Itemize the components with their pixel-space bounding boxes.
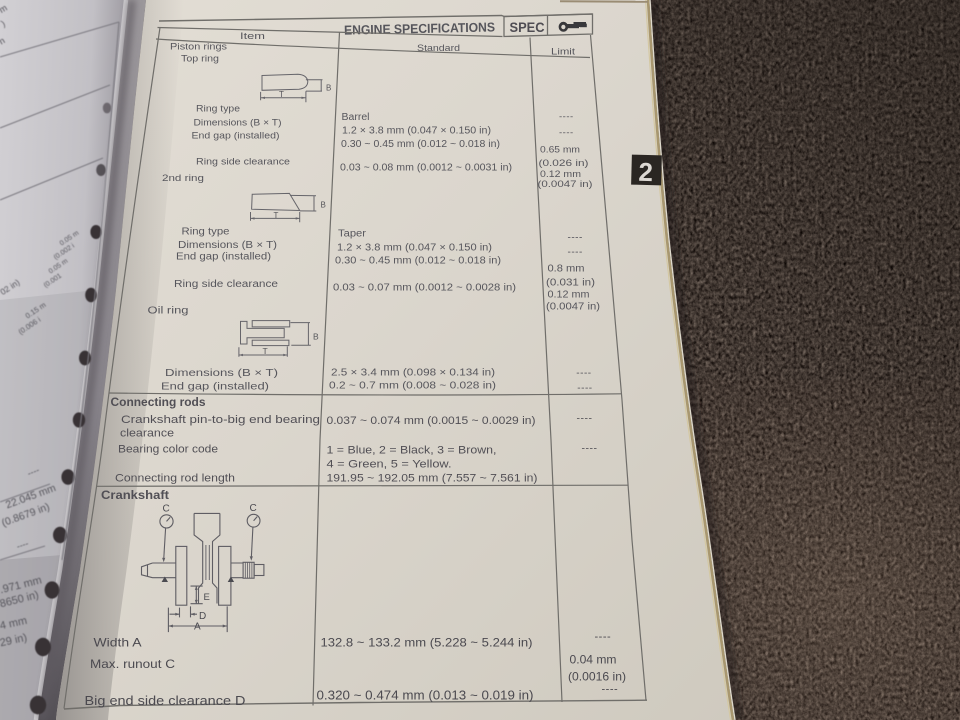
svg-text:0.30 ~ 0.45 mm (0.012 ~ 0.018: 0.30 ~ 0.45 mm (0.012 ~ 0.018 in) [335,256,501,267]
svg-text:191.95 ~ 192.05 mm (7.557 ~ 7.: 191.95 ~ 192.05 mm (7.557 ~ 7.561 in) [327,473,538,485]
svg-text:Taper: Taper [338,229,367,240]
svg-text:----: ---- [568,233,583,244]
svg-text:0.03 ~ 0.08 mm (0.0012 ~ 0.003: 0.03 ~ 0.08 mm (0.0012 ~ 0.0031 in) [340,163,512,174]
svg-text:Item: Item [240,31,265,42]
svg-text:Big end side clearance D: Big end side clearance D [85,694,246,708]
svg-text:Connecting rods: Connecting rods [111,397,206,409]
svg-text:Dimensions (B × T): Dimensions (B × T) [178,240,277,251]
svg-text:132.8 ~ 133.2 mm (5.228 ~ 5.24: 132.8 ~ 133.2 mm (5.228 ~ 5.244 in) [321,636,533,650]
svg-text:Dimensions (B × T): Dimensions (B × T) [165,367,278,379]
svg-text:Dimensions (B × T): Dimensions (B × T) [194,118,282,129]
svg-text:1.2 × 3.8 mm (0.047 × 0.150 in: 1.2 × 3.8 mm (0.047 × 0.150 in) [342,126,491,137]
svg-text:B: B [326,84,331,93]
svg-text:0.12 mm: 0.12 mm [548,290,590,301]
svg-text:Width A: Width A [94,636,142,650]
svg-text:----: ---- [577,383,592,394]
svg-text:T: T [274,211,279,220]
svg-text:Ring type: Ring type [182,227,230,238]
svg-text:----: ---- [595,631,612,643]
svg-text:----: ---- [576,368,591,379]
svg-text:Crankshaft pin-to-big end bear: Crankshaft pin-to-big end bearing [121,414,320,426]
svg-text:2nd ring: 2nd ring [162,173,204,184]
svg-text:B: B [321,201,326,210]
svg-text:Bearing color code: Bearing color code [118,444,218,456]
svg-text:End gap (installed): End gap (installed) [161,381,269,393]
svg-text:clearance: clearance [120,428,174,440]
svg-text:----: ---- [577,413,593,425]
svg-text:Ring type: Ring type [196,104,240,115]
svg-text:SPEC: SPEC [510,20,545,35]
svg-text:----: ---- [602,684,619,696]
svg-text:Ring side clearance: Ring side clearance [174,279,279,290]
svg-text:(0.0047 in): (0.0047 in) [538,179,593,190]
svg-text:Connecting rod length: Connecting rod length [115,473,235,485]
svg-text:----: ---- [568,247,583,258]
svg-text:C: C [163,504,170,515]
svg-text:Crankshaft: Crankshaft [101,488,169,502]
svg-text:0.03 ~ 0.07 mm (0.0012 ~ 0.002: 0.03 ~ 0.07 mm (0.0012 ~ 0.0028 in) [333,283,516,294]
svg-text:----: ---- [559,128,574,139]
svg-text:(0.026 in): (0.026 in) [539,158,589,169]
svg-text:2: 2 [638,157,653,187]
svg-text:----: ---- [582,443,598,455]
svg-text:1.2 × 3.8 mm (0.047 × 0.150 in: 1.2 × 3.8 mm (0.047 × 0.150 in) [337,243,492,254]
svg-text:C: C [250,503,257,514]
svg-text:Ring side clearance: Ring side clearance [196,157,290,168]
svg-text:1 = Blue, 2 = Black, 3 = Brown: 1 = Blue, 2 = Black, 3 = Brown, [327,445,497,457]
svg-text:End gap (installed): End gap (installed) [176,252,271,263]
svg-text:B: B [313,332,319,342]
svg-text:2.5 × 3.4 mm (0.098 × 0.134 in: 2.5 × 3.4 mm (0.098 × 0.134 in) [331,367,495,379]
svg-text:(0.0047 in): (0.0047 in) [546,302,600,313]
svg-text:E: E [204,592,210,603]
svg-text:(0.0016 in): (0.0016 in) [568,670,626,684]
svg-text:(0.031 in): (0.031 in) [546,278,595,289]
svg-text:A: A [194,622,201,633]
svg-text:Standard: Standard [417,43,460,54]
svg-text:Limit: Limit [551,47,575,58]
svg-text:Top ring: Top ring [181,54,219,65]
svg-text:Max. runout C: Max. runout C [90,657,175,671]
svg-text:0.04 mm: 0.04 mm [570,653,617,667]
svg-text:T: T [263,346,268,356]
svg-text:D: D [199,611,206,622]
svg-text:0.30 ~ 0.45 mm (0.012 ~ 0.018: 0.30 ~ 0.45 mm (0.012 ~ 0.018 in) [341,139,500,150]
svg-text:4 = Green, 5 = Yellow.: 4 = Green, 5 = Yellow. [327,459,452,471]
svg-text:T: T [279,90,284,99]
svg-text:Oil ring: Oil ring [148,305,189,317]
svg-text:Piston rings: Piston rings [170,42,227,53]
svg-text:0.2 ~ 0.7 mm (0.008 ~ 0.028 in: 0.2 ~ 0.7 mm (0.008 ~ 0.028 in) [329,380,496,392]
svg-text:End gap (installed): End gap (installed) [192,131,280,142]
svg-text:Barrel: Barrel [342,112,370,123]
svg-text:0.8 mm: 0.8 mm [548,264,585,275]
svg-text:0.320 ~ 0.474 mm (0.013 ~ 0.01: 0.320 ~ 0.474 mm (0.013 ~ 0.019 in) [317,689,534,703]
svg-text:0.037 ~ 0.074 mm (0.0015 ~ 0.0: 0.037 ~ 0.074 mm (0.0015 ~ 0.0029 in) [327,415,536,427]
svg-text:0.65 mm: 0.65 mm [540,145,580,156]
svg-text:----: ---- [559,112,574,123]
